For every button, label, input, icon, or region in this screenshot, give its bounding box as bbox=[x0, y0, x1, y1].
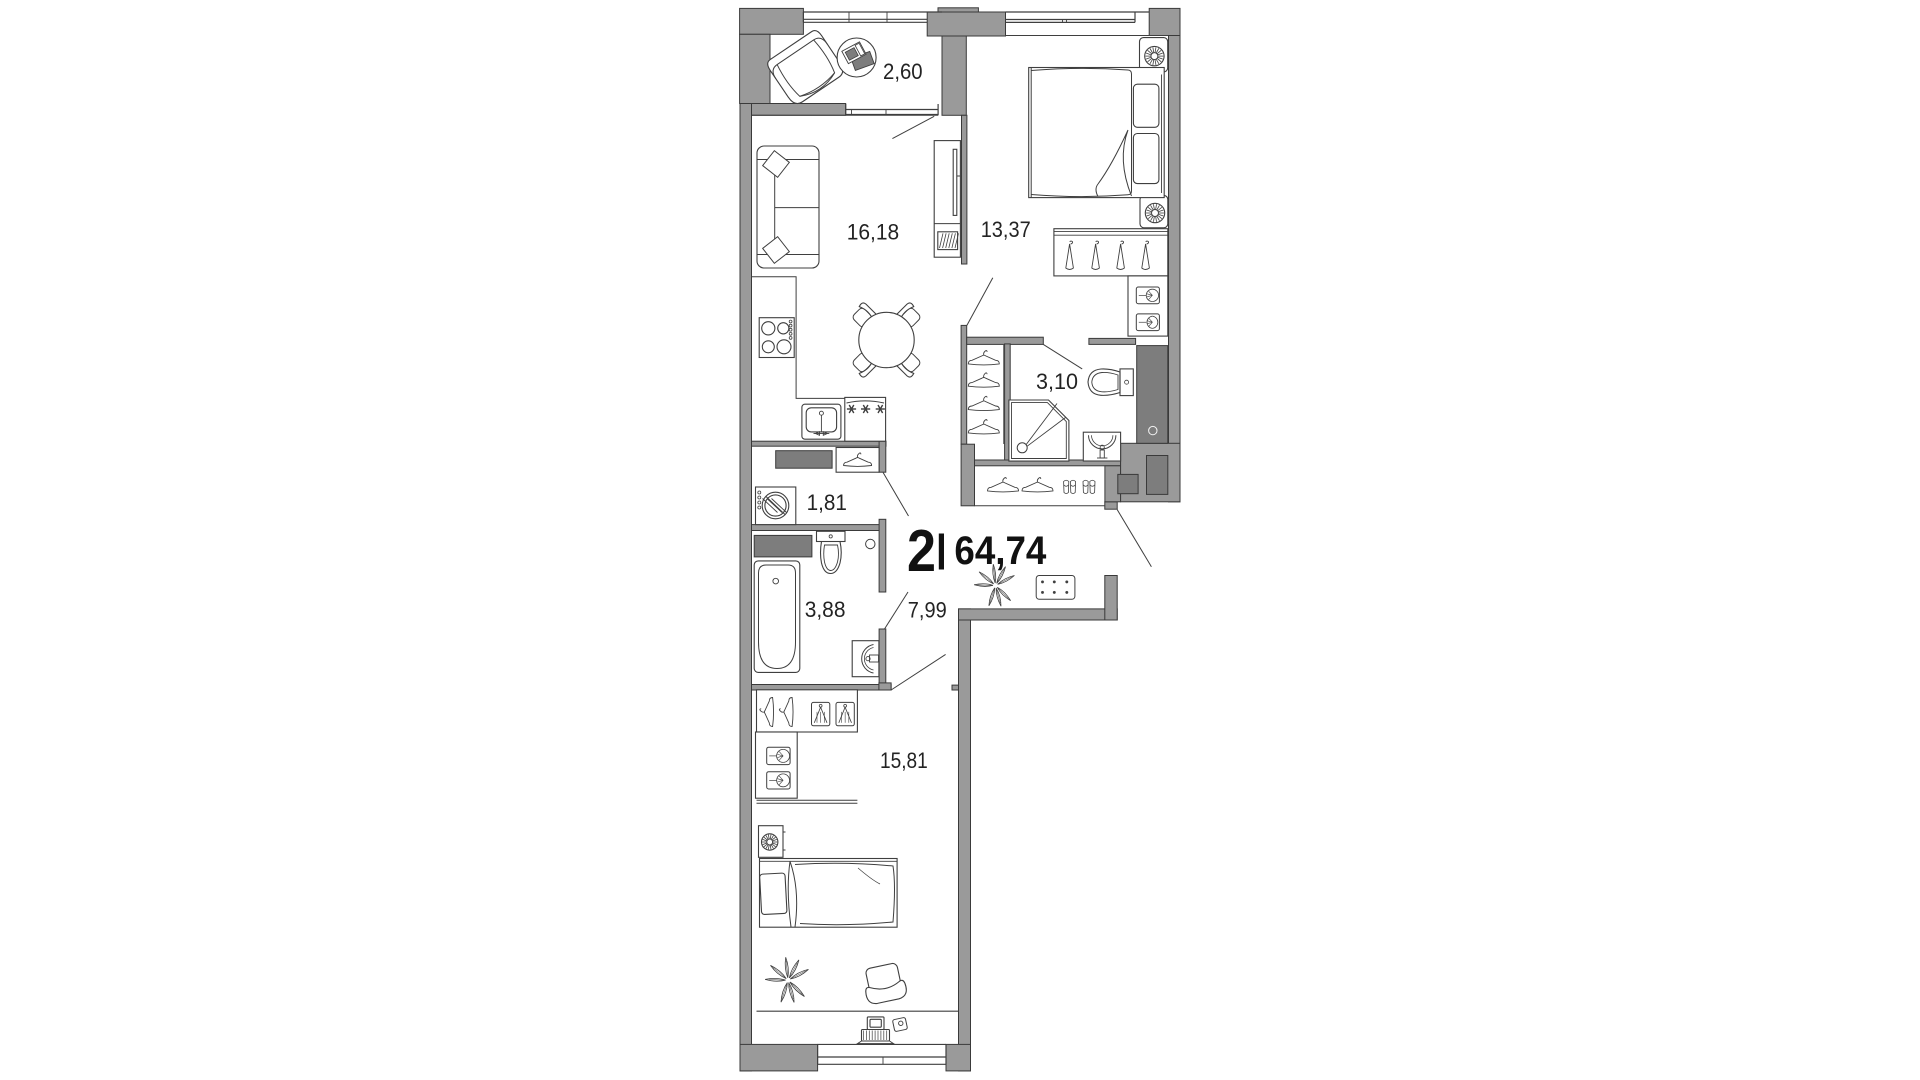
svg-text:16,18: 16,18 bbox=[847, 220, 900, 245]
svg-text:3,10: 3,10 bbox=[1036, 369, 1078, 394]
svg-text:13,37: 13,37 bbox=[981, 217, 1031, 242]
svg-text:7,99: 7,99 bbox=[908, 598, 947, 623]
svg-text:3,88: 3,88 bbox=[805, 597, 846, 622]
svg-text:2,60: 2,60 bbox=[883, 59, 923, 84]
svg-text:1,81: 1,81 bbox=[807, 490, 847, 515]
svg-text:64,74: 64,74 bbox=[954, 529, 1047, 573]
svg-text:2: 2 bbox=[907, 518, 936, 584]
svg-text:15,81: 15,81 bbox=[880, 748, 928, 773]
